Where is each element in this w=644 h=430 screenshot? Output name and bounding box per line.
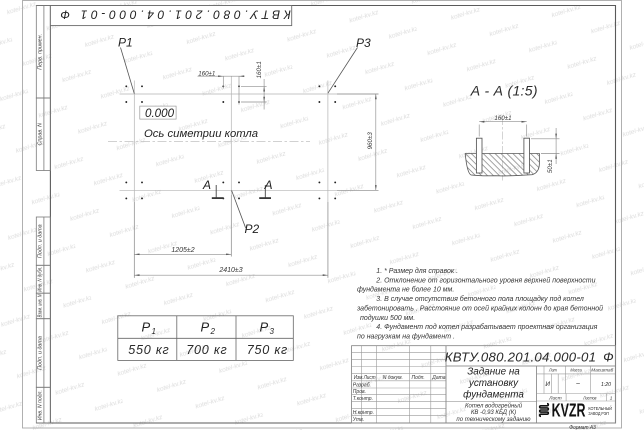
svg-text:А - А (1:5): А - А (1:5) xyxy=(470,83,538,99)
svg-text:960±3: 960±3 xyxy=(367,132,374,150)
svg-text:забетонировать . Расстояние от: забетонировать . Расстояние от осей край… xyxy=(356,304,603,312)
svg-text:по нагрузкам на фундамент .: по нагрузкам на фундамент . xyxy=(357,333,455,341)
svg-text:Подп.: Подп. xyxy=(412,375,425,381)
svg-text:1: 1 xyxy=(152,327,156,336)
svg-text:ЗАВОД РЭП: ЗАВОД РЭП xyxy=(588,411,609,417)
svg-text:750 кг: 750 кг xyxy=(247,343,288,357)
svg-text:установку: установку xyxy=(468,378,519,389)
svg-text:подушки 500 мм.: подушки 500 мм. xyxy=(360,314,415,322)
svg-text:КВТУ.080.201.04.000-01 Ф: КВТУ.080.201.04.000-01 Ф xyxy=(57,8,291,22)
svg-text:Изм.Лист: Изм.Лист xyxy=(354,375,376,381)
svg-text:Подп. и дата: Подп. и дата xyxy=(37,224,43,258)
svg-text:160±1: 160±1 xyxy=(494,115,511,122)
svg-text:P2: P2 xyxy=(245,222,260,236)
svg-text:Утв.: Утв. xyxy=(353,417,364,423)
svg-text:2. Отклонение от горизонтальн: 2. Отклонение от горизонтального уровня … xyxy=(375,276,595,284)
svg-text:550 кг: 550 кг xyxy=(128,343,169,357)
svg-text:КВТУ.080.201.04.000-01 Ф: КВТУ.080.201.04.000-01 Ф xyxy=(445,349,614,364)
svg-text:P1: P1 xyxy=(118,36,133,50)
svg-text:Лит: Лит xyxy=(548,368,557,373)
svg-text:Взам. инв. N: Взам. инв. N xyxy=(37,294,43,317)
svg-text:P: P xyxy=(142,320,151,335)
svg-text:P: P xyxy=(260,320,269,335)
svg-text:N докум.: N докум. xyxy=(383,375,403,381)
svg-text:1205±2: 1205±2 xyxy=(171,247,194,254)
svg-text:Т.контр.: Т.контр. xyxy=(353,396,373,402)
svg-text:фундамента: фундамента xyxy=(463,390,524,401)
svg-text:3: 3 xyxy=(270,327,275,336)
svg-text:Задание на: Задание на xyxy=(467,367,520,378)
svg-text:1. * Размер для справок .: 1. * Размер для справок . xyxy=(376,267,458,275)
svg-text:2: 2 xyxy=(210,327,216,336)
svg-text:Н.контр.: Н.контр. xyxy=(353,410,374,416)
svg-text:КВ -0,93 КБД (К): КВ -0,93 КБД (К) xyxy=(471,410,516,416)
svg-text:Инв. N подл.: Инв. N подл. xyxy=(37,390,43,420)
svg-text:Котел водогрейный: Котел водогрейный xyxy=(465,403,523,410)
svg-text:А: А xyxy=(202,178,211,192)
svg-text:P3: P3 xyxy=(356,36,371,50)
svg-text:160±1: 160±1 xyxy=(198,70,215,77)
svg-text:Перв. примен.: Перв. примен. xyxy=(37,34,43,70)
svg-text:0.000: 0.000 xyxy=(145,107,175,120)
svg-text:Разраб.: Разраб. xyxy=(353,382,371,388)
svg-text:2410±3: 2410±3 xyxy=(218,267,242,274)
svg-text:Пров.: Пров. xyxy=(353,389,366,395)
svg-text:по техническому заданию: по техническому заданию xyxy=(456,417,531,423)
svg-text:А: А xyxy=(264,178,273,192)
svg-text:Справ. N: Справ. N xyxy=(37,123,43,146)
svg-text:И: И xyxy=(545,381,550,388)
svg-text:160±1: 160±1 xyxy=(256,61,263,78)
svg-text:1: 1 xyxy=(610,395,613,400)
svg-text:Дата: Дата xyxy=(431,375,445,381)
svg-text:Масштаб: Масштаб xyxy=(591,368,613,373)
svg-text:50±1: 50±1 xyxy=(547,159,554,173)
svg-text:Ось симетрии котла: Ось симетрии котла xyxy=(144,128,258,140)
svg-text:фундамента не более 10 мм.: фундамента не более 10 мм. xyxy=(357,286,454,294)
svg-text:700 кг: 700 кг xyxy=(186,343,227,357)
svg-text:Инв. N дубл.: Инв. N дубл. xyxy=(37,267,43,292)
svg-text:1:20: 1:20 xyxy=(601,382,612,388)
svg-text:P: P xyxy=(201,320,210,335)
svg-text:3. В случае отсутствия бетонн: 3. В случае отсутствия бетонного пола пл… xyxy=(376,295,584,303)
svg-text:Формат А3: Формат А3 xyxy=(569,425,596,430)
svg-text:Подп. и дата: Подп. и дата xyxy=(37,336,43,370)
svg-text:Масса: Масса xyxy=(570,368,582,373)
svg-text:4. Фундамент под котел разраб: 4. Фундамент под котел разрабатывает про… xyxy=(376,323,597,331)
svg-text:–: – xyxy=(575,380,580,387)
svg-text:KVZR: KVZR xyxy=(552,401,586,421)
